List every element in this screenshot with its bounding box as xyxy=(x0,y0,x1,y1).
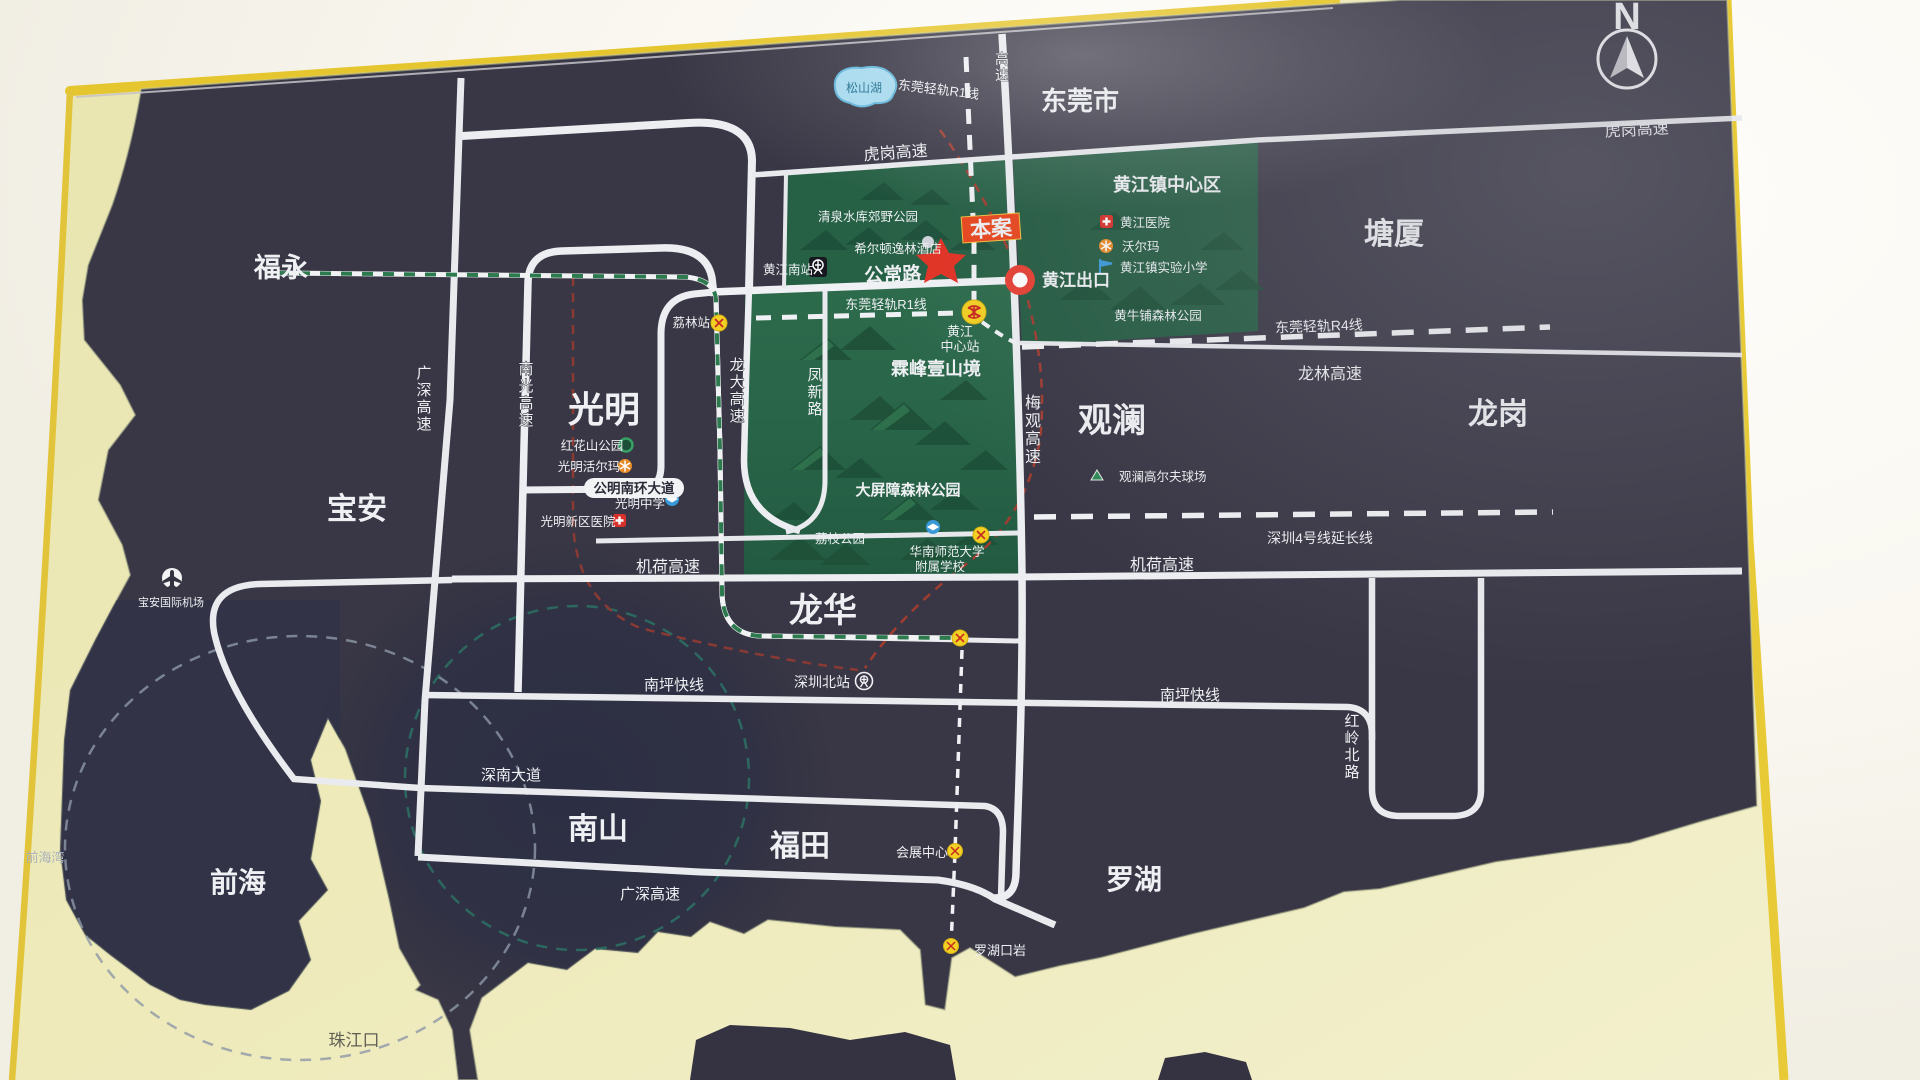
svg-text:宝安国际机场: 宝安国际机场 xyxy=(138,595,204,609)
svg-text:荔枝公园: 荔枝公园 xyxy=(815,531,865,546)
svg-text:龙大高速: 龙大高速 xyxy=(729,357,744,425)
svg-text:罗湖口岩: 罗湖口岩 xyxy=(974,943,1026,958)
svg-text:光明: 光明 xyxy=(568,389,640,430)
svg-text:广深高速: 广深高速 xyxy=(416,365,431,433)
svg-text:龙华: 龙华 xyxy=(789,592,857,630)
svg-text:荔林站: 荔林站 xyxy=(672,316,710,330)
svg-text:会展中心: 会展中心 xyxy=(896,845,948,860)
svg-text:罗湖: 罗湖 xyxy=(1106,864,1162,895)
svg-text:深圳北站: 深圳北站 xyxy=(794,674,850,690)
svg-text:公明南环大道: 公明南环大道 xyxy=(594,480,675,496)
svg-text:机荷高速: 机荷高速 xyxy=(636,558,700,576)
svg-text:附属学校: 附属学校 xyxy=(915,559,966,574)
svg-text:凤新路: 凤新路 xyxy=(807,367,822,418)
svg-text:宝安: 宝安 xyxy=(327,492,387,526)
svg-text:光明中学: 光明中学 xyxy=(615,496,665,511)
svg-text:南光高速: 南光高速 xyxy=(518,361,533,429)
svg-text:红花山公园: 红花山公园 xyxy=(561,438,624,453)
svg-text:华南师范大学: 华南师范大学 xyxy=(909,544,984,559)
svg-text:黄江南站: 黄江南站 xyxy=(763,262,813,277)
svg-text:珠江口: 珠江口 xyxy=(329,1031,380,1050)
svg-text:南山: 南山 xyxy=(568,813,628,846)
svg-text:广深高速: 广深高速 xyxy=(620,886,680,903)
svg-text:光明新区医院: 光明新区医院 xyxy=(540,514,616,529)
svg-text:大屏障森林公园: 大屏障森林公园 xyxy=(855,481,960,499)
svg-text:福田: 福田 xyxy=(769,830,830,863)
svg-text:福永: 福永 xyxy=(253,253,308,283)
svg-text:红岭北路: 红岭北路 xyxy=(1344,713,1359,781)
svg-text:深南大道: 深南大道 xyxy=(481,767,541,784)
svg-text:光明活尔玛: 光明活尔玛 xyxy=(558,459,621,474)
svg-text:南坪快线: 南坪快线 xyxy=(1160,687,1220,704)
svg-text:前海: 前海 xyxy=(210,866,266,898)
svg-text:前海湾: 前海湾 xyxy=(25,850,64,865)
svg-text:南坪快线: 南坪快线 xyxy=(644,677,704,694)
